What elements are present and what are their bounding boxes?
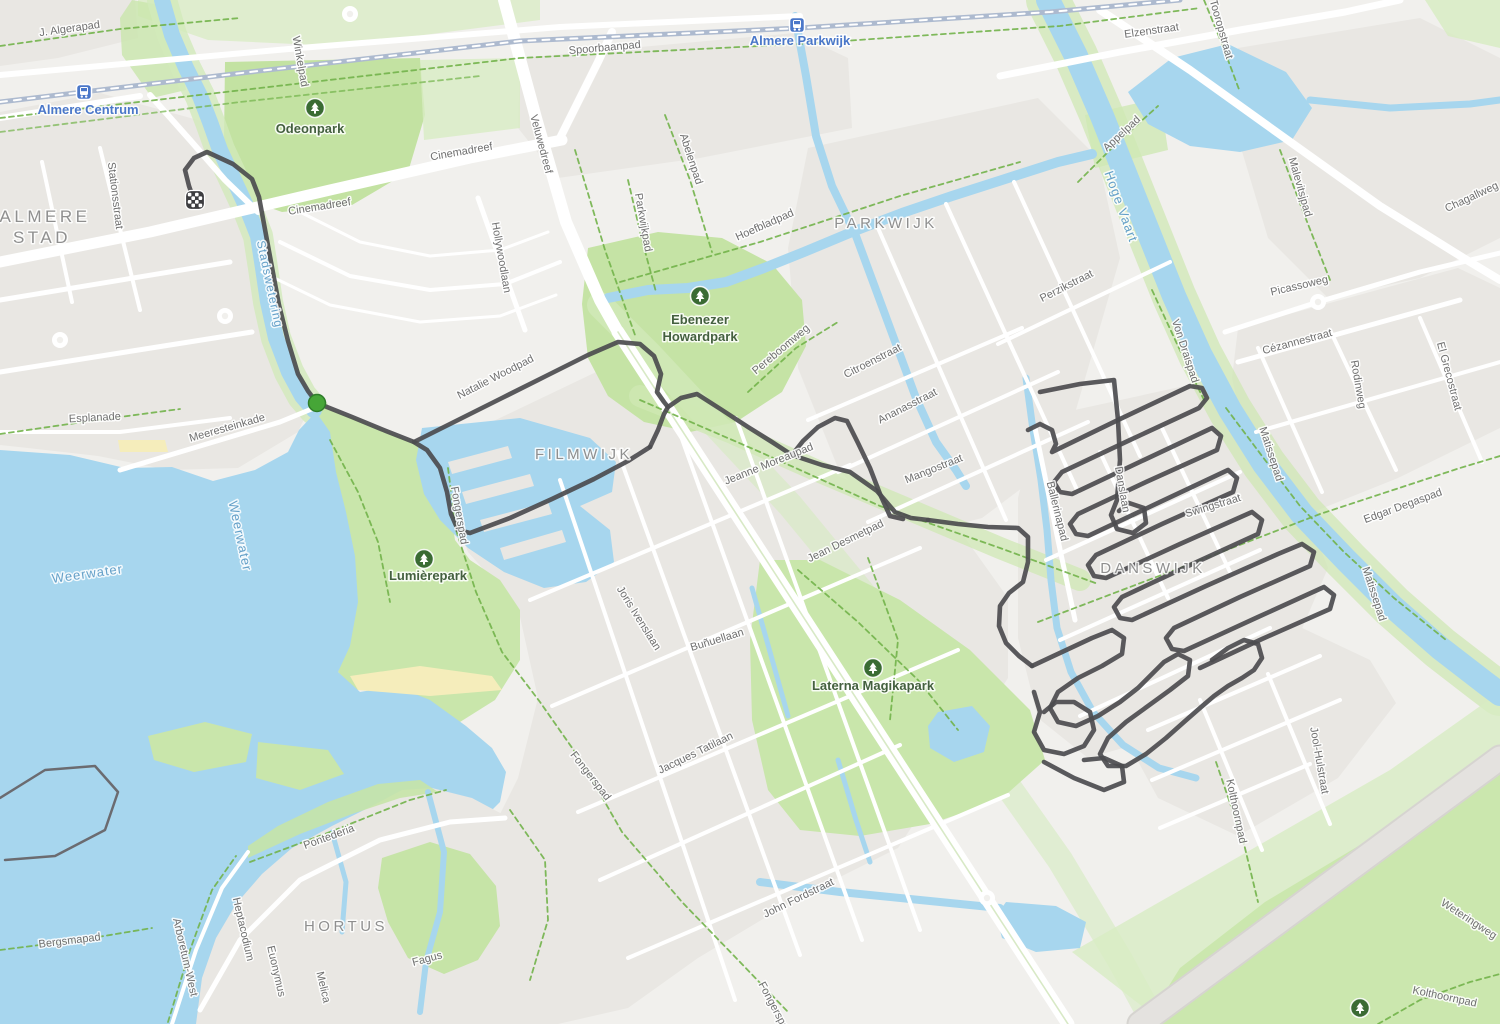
map-label: HORTUS <box>304 918 388 935</box>
tree-icon <box>1351 999 1370 1018</box>
map-viewport[interactable]: J. AlgerapadWinkelpadSpoorbaanpadAlmere … <box>0 0 1500 1024</box>
map-label: ALMERE <box>0 207 90 226</box>
roundabout-island <box>984 895 990 901</box>
roundabout-island <box>57 337 63 343</box>
tree-icon <box>691 287 710 306</box>
roundabout-island <box>347 11 353 17</box>
map-label: STAD <box>13 228 71 247</box>
map-canvas[interactable]: J. AlgerapadWinkelpadSpoorbaanpadAlmere … <box>0 0 1500 1024</box>
map-label: Almere Parkwijk <box>750 33 851 48</box>
tree-icon <box>306 99 325 118</box>
roundabout-island <box>222 313 228 319</box>
map-label: Odeonpark <box>276 121 345 136</box>
map-label: FILMWIJK <box>535 446 633 463</box>
map-label: Almere Centrum <box>37 102 138 117</box>
train-station-icon[interactable] <box>77 85 92 100</box>
train-station-icon[interactable] <box>790 18 805 33</box>
map-label: Laterna Magikapark <box>812 678 935 693</box>
map-label: PARKWIJK <box>834 215 938 232</box>
map-label: DANSWIJK <box>1100 560 1206 577</box>
roundabout-island <box>1315 299 1321 305</box>
map-label: Ebenezer <box>671 312 729 327</box>
sand-strip <box>118 440 168 452</box>
map-label: Howardpark <box>662 329 738 344</box>
tree-icon <box>864 659 883 678</box>
tree-icon <box>415 550 434 569</box>
finish-flag-marker[interactable] <box>186 191 205 210</box>
green-odeon-east <box>420 58 520 140</box>
start-dot-marker[interactable] <box>309 395 326 412</box>
map-label: Lumièrepark <box>389 568 468 583</box>
